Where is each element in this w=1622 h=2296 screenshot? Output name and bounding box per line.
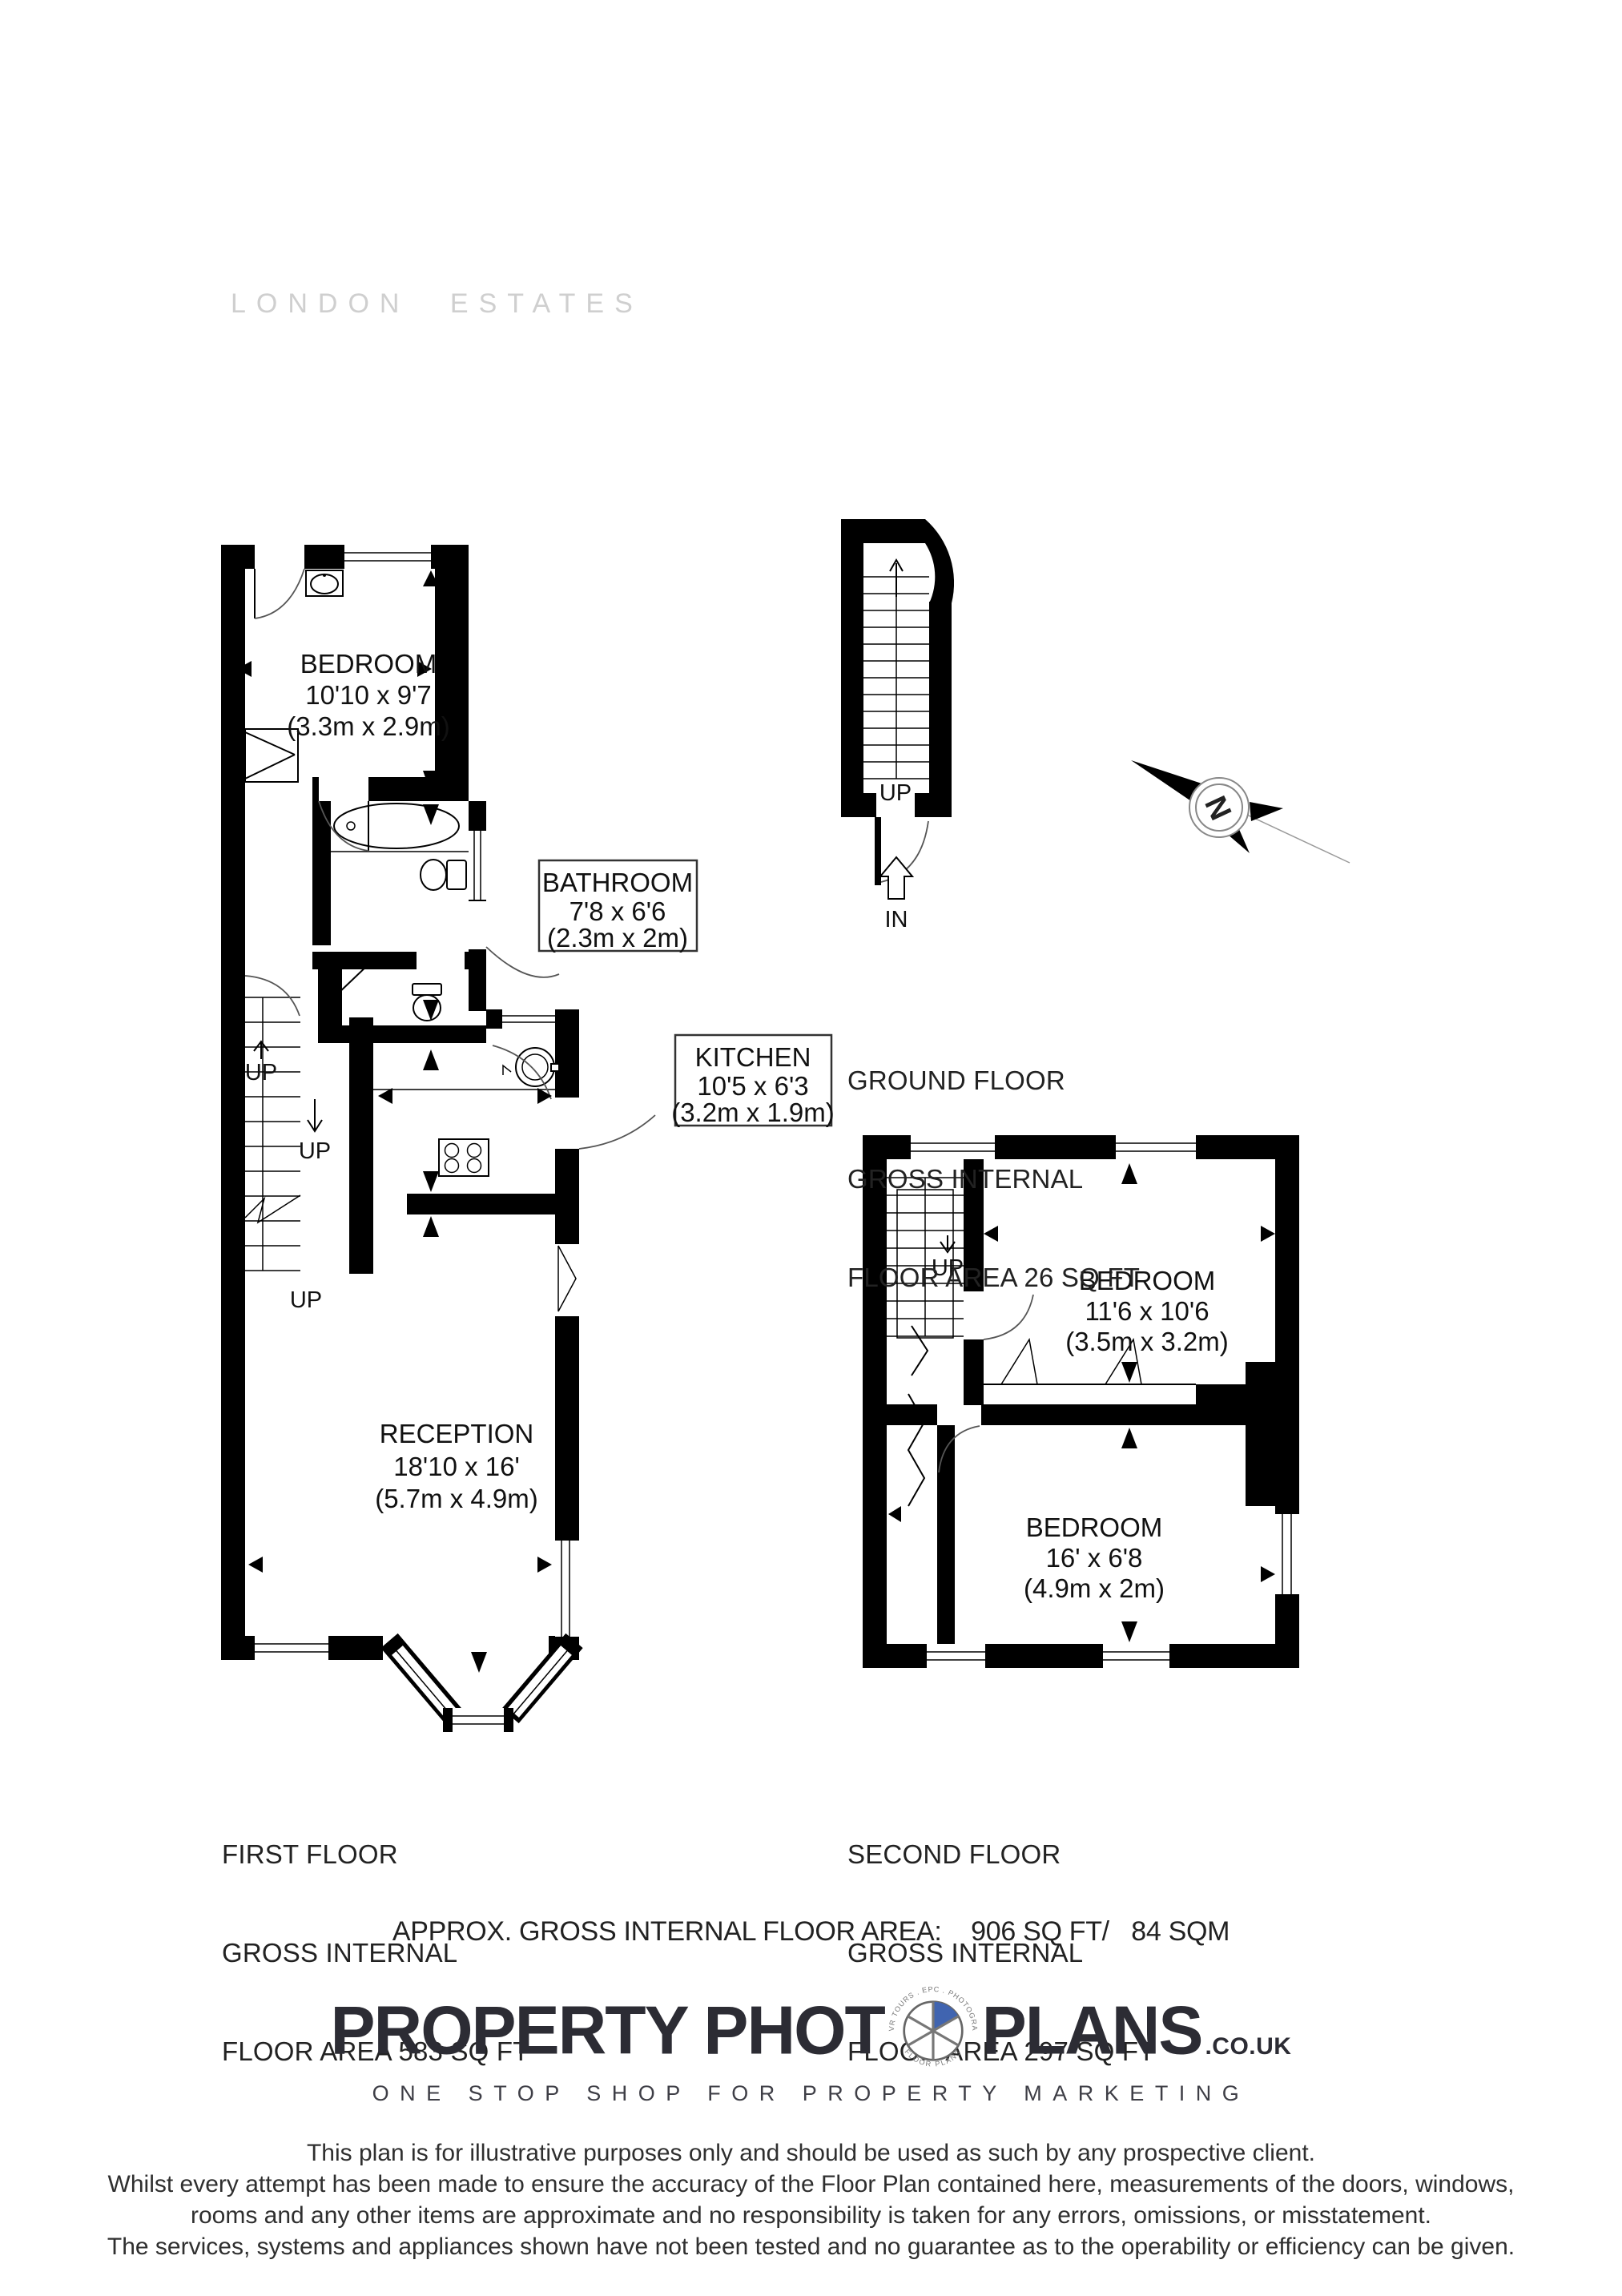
bedroom-size-m: (3.3m x 2.9m) bbox=[287, 711, 450, 741]
kitchen-size-ft: 10'5 x 6'3 bbox=[697, 1071, 808, 1101]
bathroom-label: BATHROOM 7'8 x 6'6 (2.3m x 2m) bbox=[539, 860, 697, 953]
reception-name: RECEPTION bbox=[380, 1419, 534, 1448]
bedroom-label: BEDROOM 10'10 x 9'7 (3.3m x 2.9m) bbox=[287, 649, 450, 741]
brand-word-plans: PLANS bbox=[982, 1996, 1202, 2064]
ground-floor-walls bbox=[841, 519, 954, 817]
up-labels-first-floor: UP UP UP bbox=[245, 1041, 331, 1313]
first-floor-title: FIRST FLOOR GROSS INTERNAL FLOOR AREA 58… bbox=[222, 1772, 529, 2133]
entry-in-label: IN bbox=[885, 907, 908, 932]
bedroom-size-ft: 10'10 x 9'7 bbox=[305, 680, 432, 710]
ground-up-label: UP bbox=[879, 780, 912, 806]
disclaimer-line4: The services, systems and appliances sho… bbox=[0, 2231, 1622, 2262]
brand-tagline: ONE STOP SHOP FOR PROPERTY MARKETING bbox=[0, 2081, 1622, 2106]
up-label-3: UP bbox=[290, 1287, 322, 1313]
camera-aperture-icon: 360 VR TOURS . EPC . PHOTOGRAPHY FLOOR P… bbox=[886, 1984, 980, 2078]
ground-floor-plan: UP IN bbox=[833, 517, 969, 941]
reception-size-ft: 18'10 x 16' bbox=[393, 1452, 520, 1481]
bedroom-name: BEDROOM bbox=[300, 649, 437, 679]
first-floor-plan: UP UP UP BEDROOM 10'10 x 9'7 (3.3m x 2.9… bbox=[216, 537, 841, 1754]
floorplan-page: LONDON ESTATES bbox=[0, 0, 1622, 2296]
bedroom2-size-m: (4.9m x 2m) bbox=[1024, 1573, 1165, 1603]
second-title-line1: SECOND FLOOR bbox=[847, 1838, 1155, 1871]
entry-arrow-icon bbox=[880, 857, 912, 899]
brand-word-property-photo: PROPERTY PHOT bbox=[331, 1996, 884, 2064]
bathroom-size-m: (2.3m x 2m) bbox=[547, 923, 688, 953]
kitchen-name: KITCHEN bbox=[695, 1042, 811, 1072]
disclaimer-text: This plan is for illustrative purposes o… bbox=[0, 2137, 1622, 2262]
disclaimer-line3: rooms and any other items are approximat… bbox=[0, 2200, 1622, 2231]
total-area-summary: APPROX. GROSS INTERNAL FLOOR AREA: 906 S… bbox=[0, 1916, 1622, 1948]
reception-size-m: (5.7m x 4.9m) bbox=[375, 1484, 538, 1513]
bedroom2-label: BEDROOM 16' x 6'8 (4.9m x 2m) bbox=[1024, 1513, 1165, 1603]
first-floor-stairs bbox=[245, 997, 300, 1271]
north-compass-icon: N bbox=[1113, 725, 1370, 877]
ground-title-line1: GROUND FLOOR bbox=[847, 1064, 1140, 1097]
up-label-2: UP bbox=[299, 1138, 331, 1164]
kitchen-label: KITCHEN 10'5 x 6'3 (3.2m x 1.9m) bbox=[671, 1035, 835, 1127]
reception-label: RECEPTION 18'10 x 16' (5.7m x 4.9m) bbox=[375, 1419, 538, 1513]
disclaimer-line1: This plan is for illustrative purposes o… bbox=[0, 2137, 1622, 2169]
brand-logo: PROPERTY PHOT 360 VR TOURS . EPC . PHOTO… bbox=[0, 1996, 1622, 2078]
ground-title-line2: GROSS INTERNAL bbox=[847, 1162, 1140, 1195]
bathroom-size-ft: 7'8 x 6'6 bbox=[570, 896, 666, 926]
bathroom-name: BATHROOM bbox=[542, 868, 693, 897]
first-title-line1: FIRST FLOOR bbox=[222, 1838, 529, 1871]
brand-suffix-couk: .CO.UK bbox=[1205, 2033, 1291, 2060]
bedroom2-name: BEDROOM bbox=[1026, 1513, 1163, 1542]
second-floor-title: SECOND FLOOR GROSS INTERNAL FLOOR AREA 2… bbox=[847, 1772, 1155, 2133]
kitchen-size-m: (3.2m x 1.9m) bbox=[671, 1098, 835, 1127]
disclaimer-line2: Whilst every attempt has been made to en… bbox=[0, 2169, 1622, 2200]
up-label-1: UP bbox=[245, 1060, 277, 1086]
ground-title-line3: FLOOR AREA 26 SQ FT bbox=[847, 1261, 1140, 1294]
ground-floor-stairs bbox=[863, 560, 929, 779]
ground-floor-title: GROUND FLOOR GROSS INTERNAL FLOOR AREA 2… bbox=[847, 998, 1140, 1359]
agency-logo: LONDON ESTATES bbox=[231, 288, 643, 320]
bedroom2-size-ft: 16' x 6'8 bbox=[1046, 1543, 1143, 1573]
